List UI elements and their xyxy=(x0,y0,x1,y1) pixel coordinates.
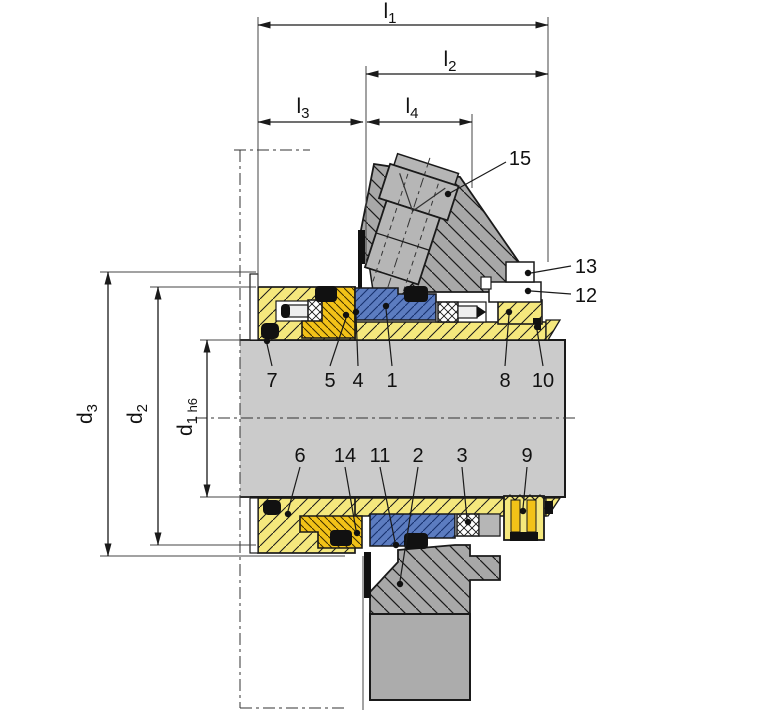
setting-clip-tab xyxy=(481,277,491,289)
oring-7 xyxy=(261,323,279,339)
callout-14: 14 xyxy=(334,445,356,467)
upper-elastomer-left xyxy=(315,286,337,302)
lower-seal-assembly xyxy=(250,495,560,553)
callout-1: 1 xyxy=(386,370,397,392)
mechanical-seal-section-drawing: l1 l2 l3 l4 d3 d2 d1 h6 15 13 12 7 5 4 1… xyxy=(0,0,768,716)
callout-11: 11 xyxy=(370,445,391,467)
label-d3: d3 xyxy=(74,404,101,424)
technical-drawing-page: l1 l2 l3 l4 d3 d2 d1 h6 15 13 12 7 5 4 1… xyxy=(0,0,768,716)
callout-2: 2 xyxy=(412,445,423,467)
callout-15: 15 xyxy=(509,148,531,170)
callout-8: 8 xyxy=(499,370,510,392)
callout-6: 6 xyxy=(294,445,305,467)
callout-7: 7 xyxy=(266,370,277,392)
upper-sleeve-bevel xyxy=(546,320,560,340)
label-l1: l1 xyxy=(383,0,396,27)
label-l2: l2 xyxy=(443,48,456,75)
label-d1-h6: d1 h6 xyxy=(174,398,201,436)
label-l4: l4 xyxy=(405,95,418,122)
callout-3: 3 xyxy=(456,445,467,467)
base-block xyxy=(370,614,470,700)
lower-step-gray xyxy=(479,514,500,536)
callout-12: 12 xyxy=(575,285,597,307)
lower-gland-edge-bar xyxy=(364,552,371,598)
snap-ring-lower xyxy=(545,501,553,514)
lower-elastomer-left xyxy=(330,530,352,546)
oring-lower xyxy=(263,500,281,515)
upper-pin-right xyxy=(458,306,477,318)
setting-clip-12 xyxy=(489,282,541,302)
upper-seat-elastomer xyxy=(404,286,428,302)
callout-5: 5 xyxy=(324,370,335,392)
pin-tip xyxy=(281,304,290,318)
callout-4: 4 xyxy=(352,370,363,392)
upper-left-lip xyxy=(250,274,258,340)
label-l3: l3 xyxy=(296,95,309,122)
callout-9: 9 xyxy=(521,445,532,467)
callout-13: 13 xyxy=(575,256,597,278)
lower-gland xyxy=(364,545,500,700)
upper-spring-right xyxy=(438,302,458,322)
label-d2: d2 xyxy=(124,404,151,424)
callout-10: 10 xyxy=(532,370,554,392)
